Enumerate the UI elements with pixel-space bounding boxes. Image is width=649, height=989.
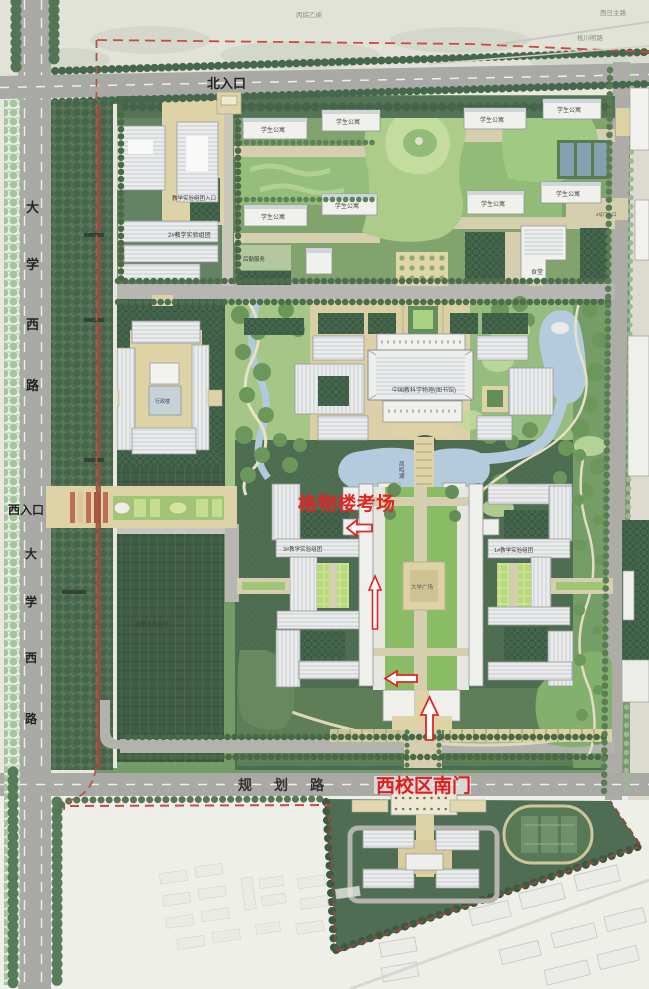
svg-text:西校区南门: 西校区南门 [376, 774, 471, 797]
